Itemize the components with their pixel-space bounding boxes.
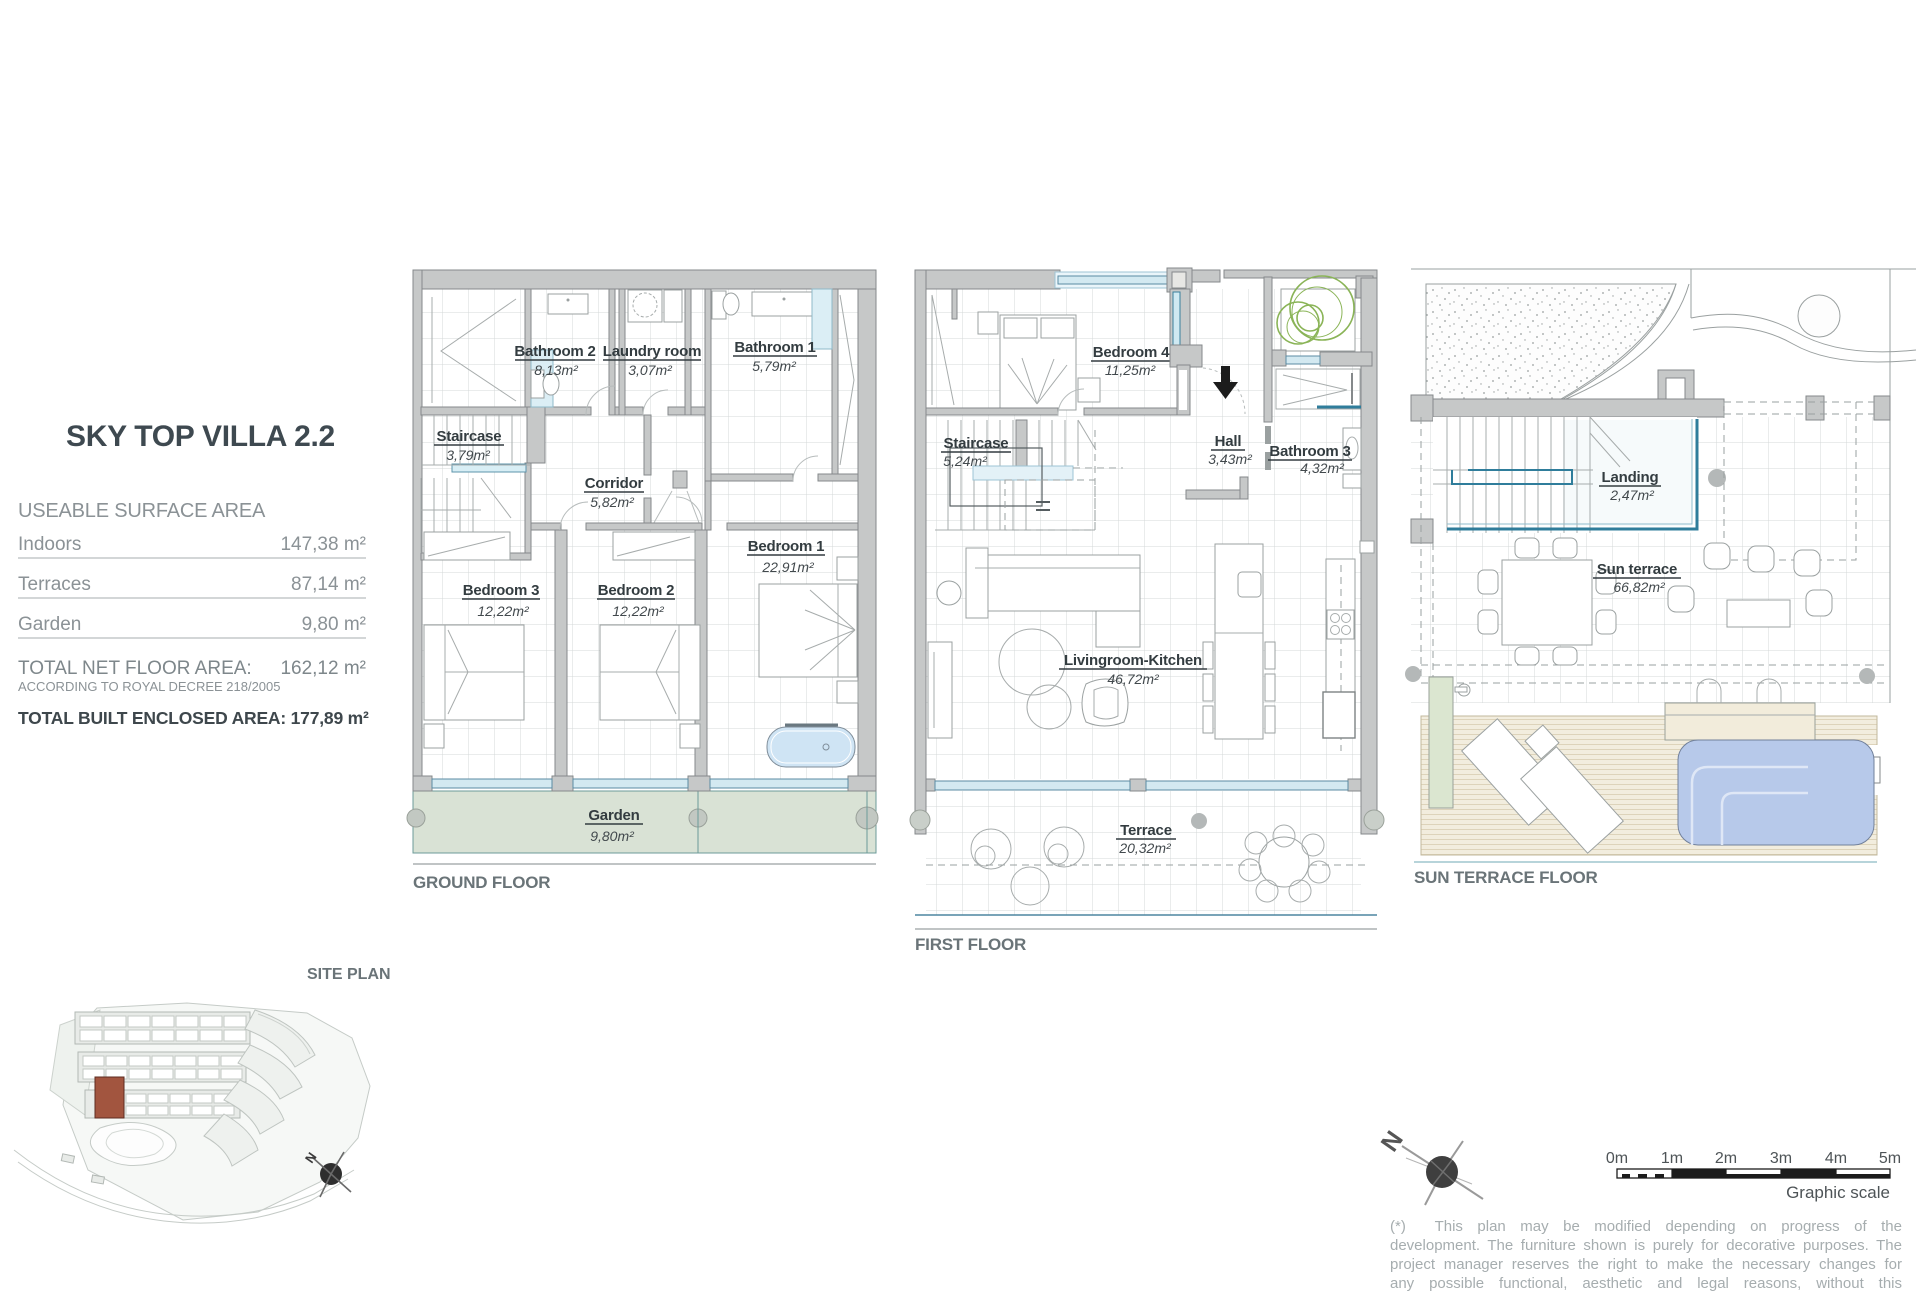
- svg-text:SITE PLAN: SITE PLAN: [307, 966, 391, 983]
- svg-text:22,91m²: 22,91m²: [761, 559, 815, 575]
- svg-text:Bathroom 1: Bathroom 1: [734, 339, 815, 356]
- svg-text:9,80m²: 9,80m²: [590, 828, 635, 844]
- svg-text:Livingroom-Kitchen: Livingroom-Kitchen: [1064, 652, 1202, 669]
- svg-text:Bedroom 1: Bedroom 1: [748, 538, 825, 555]
- svg-text:SKY TOP VILLA 2.2: SKY TOP VILLA 2.2: [66, 420, 335, 453]
- svg-text:0m: 0m: [1606, 1150, 1628, 1167]
- svg-text:20,32m²: 20,32m²: [1118, 840, 1172, 856]
- svg-text:3m: 3m: [1770, 1150, 1792, 1167]
- svg-text:Staircase: Staircase: [437, 428, 502, 445]
- svg-text:Bedroom 4: Bedroom 4: [1093, 344, 1170, 361]
- svg-text:Terrace: Terrace: [1120, 822, 1172, 839]
- svg-text:9,80 m²: 9,80 m²: [302, 614, 366, 635]
- svg-text:Hall: Hall: [1215, 433, 1242, 450]
- svg-text:3,43m²: 3,43m²: [1208, 451, 1253, 467]
- svg-text:147,38 m²: 147,38 m²: [280, 534, 366, 555]
- svg-text:Sun terrace: Sun terrace: [1597, 561, 1677, 578]
- svg-text:TOTAL BUILT ENCLOSED AREA: 177: TOTAL BUILT ENCLOSED AREA: 177,89 m²: [18, 708, 369, 728]
- svg-text:87,14 m²: 87,14 m²: [291, 574, 366, 595]
- svg-text:5,24m²: 5,24m²: [943, 453, 988, 469]
- svg-text:Corridor: Corridor: [585, 475, 644, 492]
- svg-text:FIRST FLOOR: FIRST FLOOR: [915, 935, 1026, 954]
- svg-text:Indoors: Indoors: [18, 534, 81, 555]
- svg-text:Staircase: Staircase: [944, 435, 1009, 452]
- svg-text:GROUND FLOOR: GROUND FLOOR: [413, 873, 550, 892]
- svg-text:N: N: [1376, 1126, 1409, 1157]
- svg-text:Graphic scale: Graphic scale: [1786, 1183, 1890, 1202]
- svg-text:Laundry room: Laundry room: [603, 343, 701, 360]
- svg-text:Bedroom 3: Bedroom 3: [463, 582, 540, 599]
- svg-text:46,72m²: 46,72m²: [1107, 671, 1160, 687]
- svg-text:Bathroom 3: Bathroom 3: [1269, 443, 1350, 460]
- svg-text:Garden: Garden: [588, 807, 639, 824]
- svg-text:5,82m²: 5,82m²: [590, 494, 635, 510]
- svg-text:2,47m²: 2,47m²: [1609, 487, 1655, 503]
- svg-text:5m: 5m: [1879, 1150, 1901, 1167]
- svg-text:4m: 4m: [1825, 1150, 1847, 1167]
- svg-text:TOTAL NET FLOOR AREA:: TOTAL NET FLOOR AREA:: [18, 658, 252, 679]
- svg-text:8,13m²: 8,13m²: [534, 362, 579, 378]
- svg-text:Bedroom 2: Bedroom 2: [598, 582, 675, 599]
- svg-text:12,22m²: 12,22m²: [612, 603, 665, 619]
- svg-text:3,07m²: 3,07m²: [628, 362, 673, 378]
- svg-text:ACCORDING TO ROYAL DECREE 218/: ACCORDING TO ROYAL DECREE 218/2005: [18, 679, 281, 694]
- svg-text:162,12 m²: 162,12 m²: [280, 658, 366, 679]
- svg-text:2m: 2m: [1715, 1150, 1737, 1167]
- svg-text:Landing: Landing: [1602, 469, 1659, 486]
- svg-text:Bathroom 2: Bathroom 2: [514, 343, 595, 360]
- svg-text:Garden: Garden: [18, 614, 81, 635]
- svg-text:12,22m²: 12,22m²: [477, 603, 530, 619]
- svg-text:11,25m²: 11,25m²: [1105, 362, 1157, 378]
- svg-text:1m: 1m: [1661, 1150, 1683, 1167]
- svg-text:5,79m²: 5,79m²: [752, 358, 797, 374]
- svg-text:SUN TERRACE FLOOR: SUN TERRACE FLOOR: [1414, 868, 1598, 887]
- svg-text:66,82m²: 66,82m²: [1613, 579, 1666, 595]
- svg-text:4,32m²: 4,32m²: [1300, 460, 1345, 476]
- svg-text:Terraces: Terraces: [18, 574, 91, 595]
- svg-text:USEABLE SURFACE AREA: USEABLE SURFACE AREA: [18, 500, 266, 522]
- svg-text:3,79m²: 3,79m²: [446, 447, 491, 463]
